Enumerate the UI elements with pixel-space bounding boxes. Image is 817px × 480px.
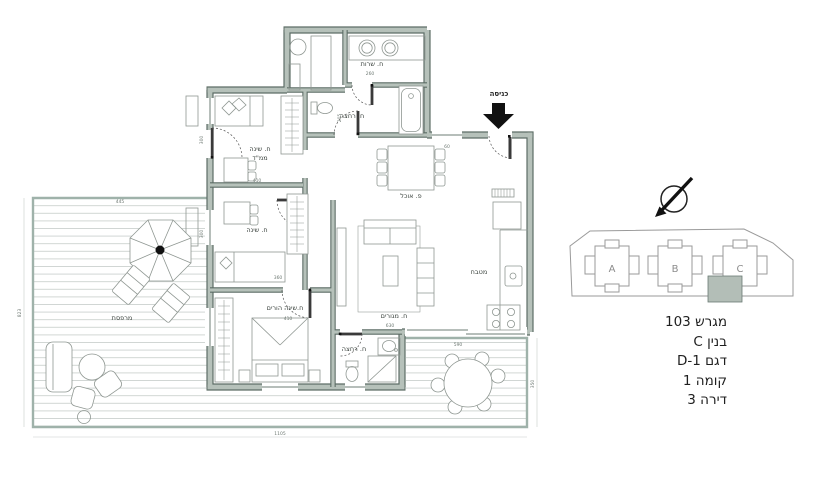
entrance-opening <box>488 130 512 139</box>
double-bed-icon <box>252 318 308 382</box>
site-building-a: A <box>585 240 639 292</box>
site-building-b: B <box>648 240 702 292</box>
room-label-terrace: מרפסת <box>112 314 133 322</box>
closet-icon <box>287 194 308 254</box>
room-label-dining: פ. אוכל <box>400 192 421 200</box>
building-letter-a: A <box>609 264 616 275</box>
room-label-bedroom-mamad: ח. שינה <box>249 145 270 153</box>
building-letter-b: B <box>672 264 679 275</box>
dim-text: 300 <box>199 230 205 239</box>
room-label-mamad: ממ"ד <box>252 154 267 162</box>
dining-furniture <box>377 146 445 190</box>
living-sliding-door <box>405 327 527 336</box>
dim-text: 300 <box>199 136 205 145</box>
nightstand-icon <box>239 370 250 382</box>
room-label-master-bedroom: ח.שינה הורים <box>267 304 304 312</box>
dim-text: 260 <box>366 71 375 77</box>
shutter-box <box>186 96 198 126</box>
building-letter-c: C <box>737 264 744 275</box>
info-line-plot: מגרש 103 <box>577 313 727 333</box>
apartment-info-block: מגרש 103 בנין C דגם D-1 קומה 1 דירה 3 <box>577 313 727 411</box>
site-building-c: C <box>708 240 767 302</box>
entrance-label: כניסה <box>490 90 509 98</box>
desk-icon <box>224 202 250 224</box>
dim-text: 590 <box>454 342 463 348</box>
info-line-building: בנין C <box>577 333 727 353</box>
dining-table-icon <box>388 146 434 190</box>
info-line-model: דגם D-1 <box>577 352 727 372</box>
info-line-floor: קומה 1 <box>577 372 727 392</box>
dim-text: 360 <box>274 275 283 281</box>
room-label-bathroom-top: ח. רחצה <box>340 112 364 120</box>
highlighted-unit <box>708 276 742 302</box>
armchair-unit-icon <box>417 248 434 306</box>
room-label-bedroom-2: ח. שינה <box>246 226 267 234</box>
dim-text: 410 <box>284 316 293 322</box>
north-arrow-icon <box>655 178 692 217</box>
dim-text: 823 <box>17 309 23 318</box>
room-label-living-room: ח. מגורים <box>381 312 408 320</box>
dim-text: 445 <box>116 199 125 205</box>
round-table-icon <box>444 359 492 407</box>
room-label-kitchen: מטבח <box>471 268 488 276</box>
nightstand-icon <box>309 370 320 382</box>
floorplan-page: ח. שינה ממ"ד ח. שינה ח.שינה הורים ח. רחצ… <box>0 0 817 480</box>
dim-text: 350 <box>530 380 536 389</box>
outdoor-table-icon <box>79 354 105 380</box>
dim-text: 60 <box>444 144 450 150</box>
dim-text: 1105 <box>274 431 286 437</box>
coffee-table-icon <box>383 256 398 286</box>
dim-text: 410 <box>253 178 262 184</box>
room-label-bathroom-master: ח. רחצה <box>342 345 366 353</box>
dim-text: 205 <box>337 114 343 123</box>
site-key-plan: A B C <box>570 229 793 302</box>
desk-icon <box>224 158 248 182</box>
outdoor-sofa-icon <box>46 342 72 392</box>
info-line-apartment: דירה 3 <box>577 391 727 411</box>
entrance-arrow-icon <box>483 103 514 129</box>
dim-text: 630 <box>386 323 395 329</box>
tv-cabinet-icon <box>337 228 346 306</box>
room-label-service-room: ח. שרות <box>361 60 384 68</box>
bathtub-icon <box>399 86 423 134</box>
